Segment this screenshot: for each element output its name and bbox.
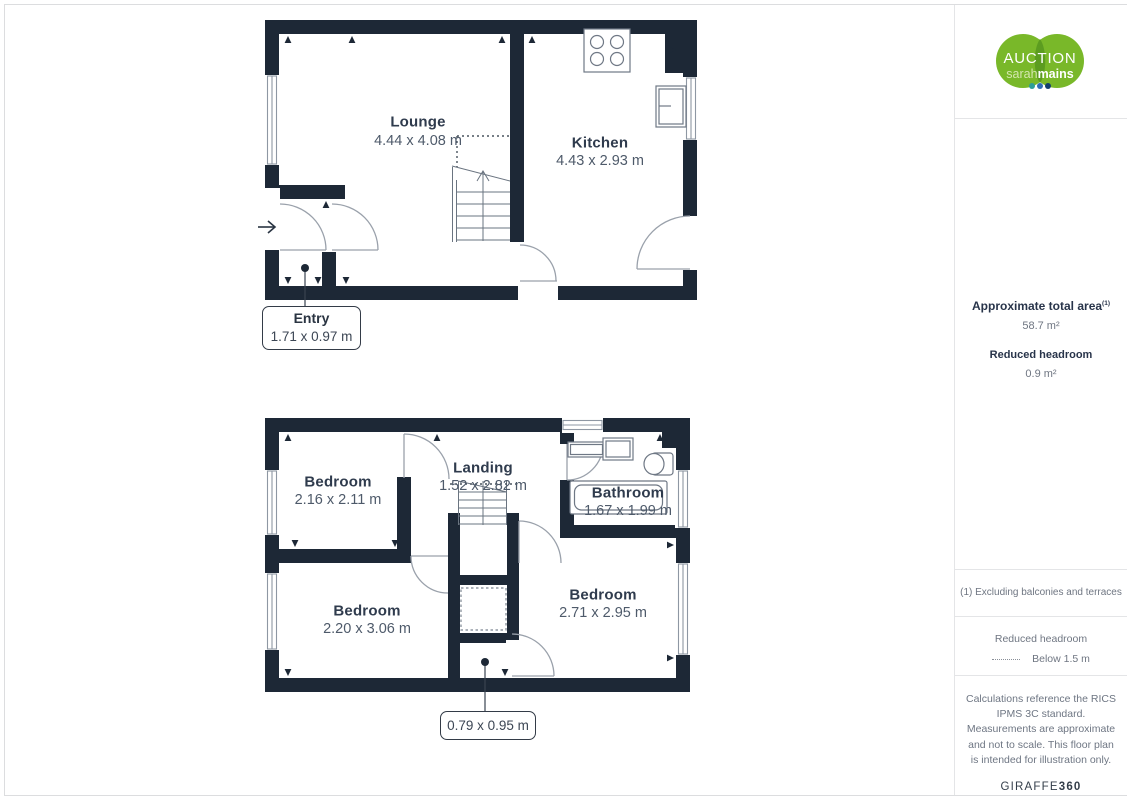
legend-title: Reduced headroom: [955, 633, 1127, 645]
room-dims-bedroom-3: 2.71 x 2.95 m: [559, 605, 647, 621]
footnote-section: (1) Excluding balconies and terraces: [955, 569, 1127, 616]
understairs-callout: 0.79 x 0.95 m: [440, 711, 536, 740]
legend-section: Reduced headroom Below 1.5 m: [955, 616, 1127, 675]
floorplan-page: Lounge 4.44 x 4.08 m Kitchen 4.43 x 2.93…: [0, 0, 1131, 800]
logo-text-sarahmains: sarahmains: [1006, 67, 1073, 81]
reduced-headroom-dash-sample: [992, 659, 1020, 660]
brand-name: GIRAFFE: [1000, 781, 1058, 793]
entry-callout-dims: 1.71 x 0.97 m: [271, 328, 353, 346]
hob-icon: [584, 29, 630, 72]
entry-callout-name: Entry: [294, 310, 330, 328]
stairs-ground-floor: [452, 166, 510, 242]
room-name-bedroom-1: Bedroom: [304, 474, 371, 491]
area-summary: Approximate total area(1) 58.7 m² Reduce…: [955, 299, 1127, 380]
reduced-headroom-line-ground: [457, 136, 510, 167]
logo-text-auction: AUCTION: [1003, 50, 1076, 67]
legend-label: Below 1.5 m: [1032, 653, 1090, 665]
understairs-callout-dims: 0.79 x 0.95 m: [447, 717, 529, 735]
brand-suffix: 360: [1059, 781, 1082, 793]
reduced-headroom-value: 0.9 m²: [955, 368, 1127, 380]
total-area-value: 58.7 m²: [955, 320, 1127, 332]
logo-text-mains: mains: [1038, 67, 1074, 81]
total-area-footnote-ref: (1): [1102, 300, 1110, 307]
room-dims-bedroom-1: 2.16 x 2.11 m: [295, 492, 382, 508]
room-dims-landing: 1.52 x 2.82 m: [439, 478, 527, 494]
auction-sarah-mains-logo: AUCTION sarahmains: [955, 6, 1127, 118]
reduced-headroom-title: Reduced headroom: [955, 349, 1127, 361]
disclaimer-section: Calculations reference the RICS IPMS 3C …: [955, 675, 1127, 793]
logo-text-sarah: sarah: [1006, 67, 1037, 81]
understairs-cupboard: [461, 588, 506, 630]
room-name-lounge: Lounge: [390, 114, 445, 131]
room-name-bathroom: Bathroom: [592, 485, 664, 502]
info-sidebar: AUCTION sarahmains Approximate total are…: [954, 5, 1127, 795]
room-name-bedroom-2: Bedroom: [333, 603, 400, 620]
room-name-landing: Landing: [453, 460, 513, 477]
logo-dot-teal: [1029, 83, 1035, 89]
total-area-title-text: Approximate total area: [972, 299, 1102, 313]
entry-callout: Entry 1.71 x 0.97 m: [262, 306, 361, 350]
total-area-title: Approximate total area(1): [955, 299, 1127, 313]
agency-logo-section: AUCTION sarahmains: [955, 5, 1127, 118]
logo-dot-blue: [1037, 83, 1043, 89]
giraffe360-brand: GIRAFFE360: [955, 781, 1127, 793]
room-name-bedroom-3: Bedroom: [569, 587, 636, 604]
room-name-kitchen: Kitchen: [572, 135, 628, 152]
room-dims-lounge: 4.44 x 4.08 m: [374, 133, 462, 149]
disclaimer-text: Calculations reference the RICS IPMS 3C …: [965, 692, 1117, 768]
legend-row: Below 1.5 m: [955, 653, 1127, 665]
logo-dot-navy: [1045, 83, 1051, 89]
room-dims-bathroom: 1.67 x 1.99 m: [584, 503, 672, 519]
room-dims-kitchen: 4.43 x 2.93 m: [556, 153, 644, 169]
footnote-text: (1) Excluding balconies and terraces: [960, 587, 1122, 598]
sidebar-divider-1: [955, 118, 1127, 119]
room-dims-bedroom-2: 2.20 x 3.06 m: [323, 621, 411, 637]
